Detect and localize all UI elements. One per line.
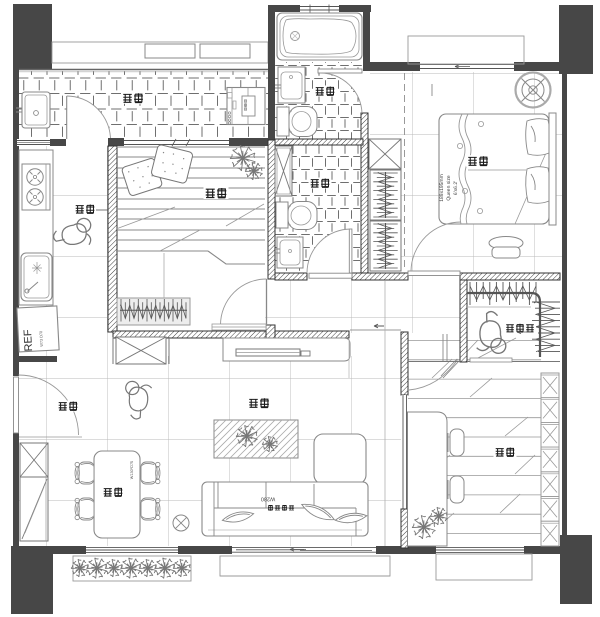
svg-text:REF: REF — [22, 329, 35, 352]
svg-text:Queen size: Queen size — [446, 175, 452, 201]
svg-text:W280: W280 — [261, 496, 275, 502]
svg-text:W73 D70: W73 D70 — [39, 331, 44, 347]
svg-text:189x195mm: 189x195mm — [439, 174, 445, 202]
svg-text:W130*D75: W130*D75 — [130, 461, 134, 479]
svg-text:6'x6.2': 6'x6.2' — [453, 181, 459, 195]
